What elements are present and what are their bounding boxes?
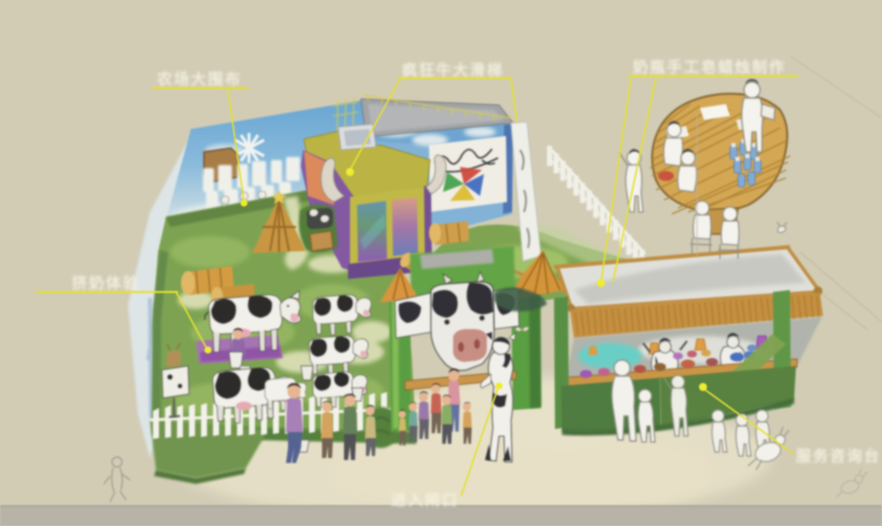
svg-text:疯狂牛大滑梯: 疯狂牛大滑梯	[402, 61, 504, 79]
svg-text:奶瓶手工皂蜡烛制作: 奶瓶手工皂蜡烛制作	[633, 58, 786, 76]
svg-text:进入闸口: 进入闸口	[391, 491, 459, 509]
svg-text:挤奶体验: 挤奶体验	[72, 274, 140, 292]
svg-text:服务咨询台: 服务咨询台	[796, 447, 881, 465]
svg-text:农场大围布: 农场大围布	[156, 70, 242, 88]
